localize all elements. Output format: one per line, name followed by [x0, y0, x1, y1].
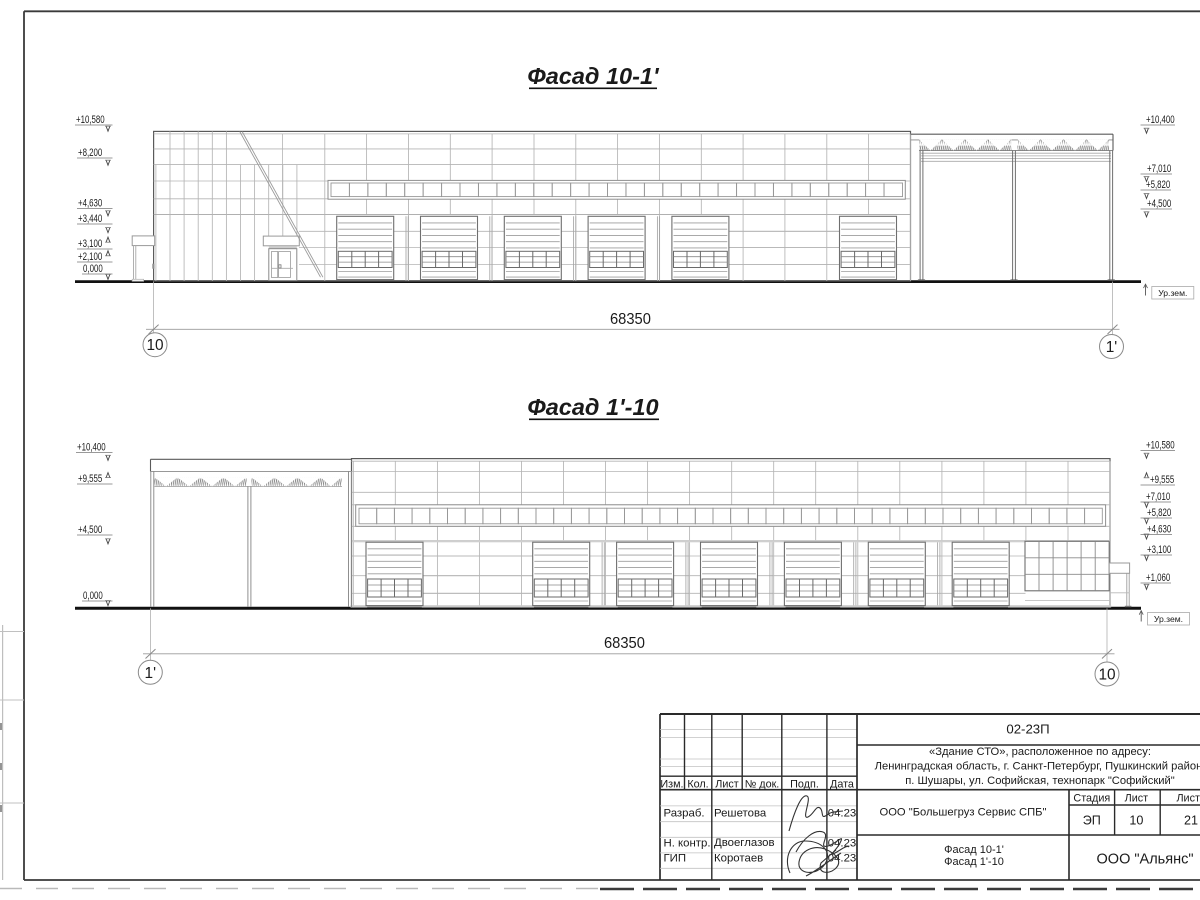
svg-text:Лист: Лист	[715, 778, 739, 790]
svg-text:Фасад 10-1': Фасад 10-1'	[944, 844, 1004, 856]
svg-text:0,000: 0,000	[83, 590, 103, 603]
svg-text:Н. контр.: Н. контр.	[664, 838, 711, 850]
svg-text:+3,100: +3,100	[78, 238, 102, 251]
svg-text:+4,500: +4,500	[1147, 198, 1171, 211]
svg-text:+4,500: +4,500	[78, 524, 102, 537]
svg-text:10: 10	[1098, 667, 1115, 684]
svg-text:ГИП: ГИП	[664, 853, 687, 865]
svg-text:+1,060: +1,060	[1146, 572, 1170, 585]
svg-text:Фасад 1'-10: Фасад 1'-10	[527, 394, 658, 420]
svg-text:Кол.: Кол.	[687, 778, 708, 790]
svg-text:+9,555: +9,555	[1150, 474, 1174, 487]
svg-text:+3,440: +3,440	[78, 213, 102, 226]
svg-text:Коротаев: Коротаев	[714, 853, 763, 865]
svg-text:Решетова: Решетова	[714, 808, 767, 820]
svg-text:Ур.зем.: Ур.зем.	[1154, 614, 1183, 624]
svg-text:Стадия: Стадия	[1073, 793, 1110, 805]
svg-text:Дата: Дата	[830, 778, 854, 790]
svg-text:Фасад 1'-10: Фасад 1'-10	[944, 856, 1004, 868]
svg-text:«Здание СТО», расположенное по: «Здание СТО», расположенное по адресу:	[929, 746, 1151, 758]
svg-text:68350: 68350	[610, 310, 651, 328]
svg-text:Лист: Лист	[1125, 793, 1149, 805]
svg-text:+7,010: +7,010	[1147, 163, 1171, 176]
svg-text:+7,010: +7,010	[1146, 491, 1170, 504]
svg-text:1': 1'	[1106, 339, 1118, 356]
svg-text:Разраб.: Разраб.	[664, 808, 705, 820]
svg-text:Ленинградская область, г. Санк: Ленинградская область, г. Санкт-Петербур…	[875, 761, 1200, 773]
svg-text:Фасад 10-1': Фасад 10-1'	[527, 63, 660, 89]
svg-text:+10,580: +10,580	[76, 114, 105, 127]
svg-text:+9,555: +9,555	[78, 473, 102, 486]
svg-text:1': 1'	[145, 665, 157, 682]
svg-text:+10,400: +10,400	[1146, 114, 1175, 127]
svg-text:02-23П: 02-23П	[1006, 722, 1049, 737]
svg-text:ЭП: ЭП	[1083, 814, 1101, 828]
svg-text:ООО "Большегруз Сервис СПБ": ООО "Большегруз Сервис СПБ"	[880, 807, 1047, 819]
svg-text:+2,100: +2,100	[78, 251, 102, 264]
svg-text:+4,630: +4,630	[78, 197, 102, 210]
svg-text:Двоеглазов: Двоеглазов	[714, 837, 775, 849]
svg-text:+4,630: +4,630	[1147, 523, 1171, 536]
svg-text:10: 10	[146, 337, 163, 354]
svg-text:10: 10	[1129, 814, 1143, 828]
svg-text:+3,100: +3,100	[1147, 544, 1171, 557]
svg-text:0,000: 0,000	[83, 263, 103, 276]
svg-text:п. Шушары, ул. Софийская, техн: п. Шушары, ул. Софийская, технопарк "Соф…	[905, 775, 1175, 787]
svg-text:Листов: Листов	[1176, 793, 1200, 805]
svg-text:21: 21	[1184, 814, 1198, 828]
svg-text:Подп.: Подп.	[790, 778, 819, 790]
svg-text:68350: 68350	[604, 634, 645, 652]
svg-text:+10,400: +10,400	[77, 441, 106, 454]
svg-text:ООО "Альянс": ООО "Альянс"	[1097, 852, 1194, 868]
svg-text:+8,200: +8,200	[78, 147, 102, 160]
svg-text:Изм.: Изм.	[660, 778, 683, 790]
svg-text:+5,820: +5,820	[1146, 179, 1170, 192]
svg-text:№ док.: № док.	[745, 778, 780, 790]
svg-text:04.23: 04.23	[828, 808, 857, 820]
svg-text:Ур.зем.: Ур.зем.	[1158, 288, 1187, 298]
svg-text:+5,820: +5,820	[1147, 507, 1171, 520]
svg-text:+10,580: +10,580	[1146, 439, 1175, 452]
